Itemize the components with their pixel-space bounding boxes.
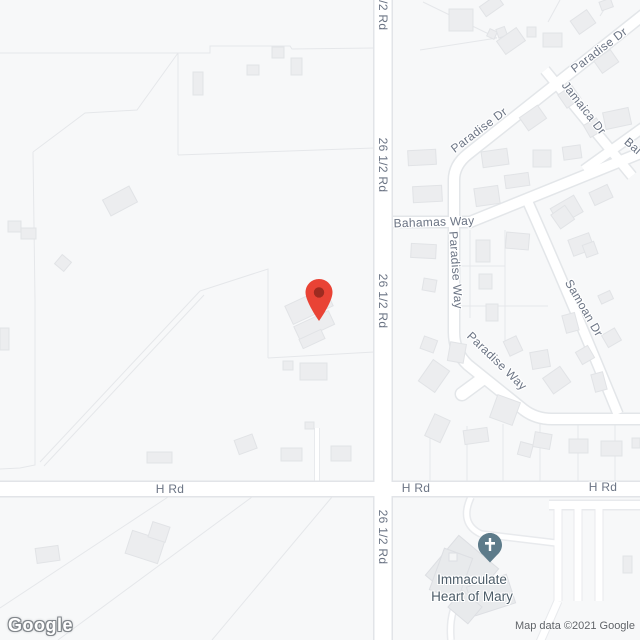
road-label-h-rd-east: H Rd bbox=[589, 480, 618, 494]
church-poi-icon[interactable] bbox=[478, 533, 502, 563]
road-label-26-half-rd-2: 26 1/2 Rd bbox=[376, 138, 390, 193]
google-logo[interactable]: Google bbox=[8, 615, 73, 636]
map-canvas[interactable]: 26 1/2 Rd 26 1/2 Rd 26 1/2 Rd 26 1/2 Rd … bbox=[0, 0, 640, 640]
map-attribution: Map data ©2021 Google bbox=[515, 620, 635, 632]
red-map-pin-icon[interactable] bbox=[305, 278, 333, 322]
road-label-26-half-rd-4: 26 1/2 Rd bbox=[376, 510, 390, 565]
poi-label-line1: Immaculate bbox=[431, 571, 513, 588]
poi-label-immaculate-heart-of-mary[interactable]: Immaculate Heart of Mary bbox=[431, 571, 513, 605]
road-label-h-rd-west: H Rd bbox=[156, 482, 185, 496]
road-label-h-rd-mid: H Rd bbox=[402, 481, 431, 495]
road-label-bahamas-way: Bahamas Way bbox=[393, 214, 474, 231]
road-label-26-half-rd-3: 26 1/2 Rd bbox=[376, 274, 390, 329]
poi-label-line2: Heart of Mary bbox=[431, 588, 513, 605]
road-label-26-half-rd-1: 26 1/2 Rd bbox=[376, 0, 390, 30]
